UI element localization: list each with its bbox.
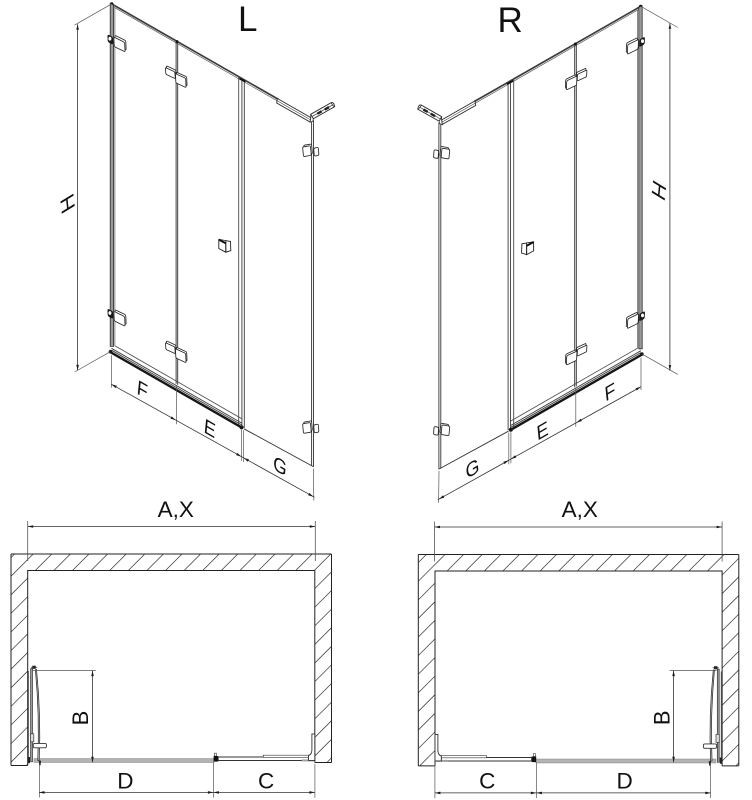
svg-text:A,X: A,X	[158, 497, 194, 522]
svg-text:C: C	[258, 769, 274, 794]
svg-text:D: D	[616, 769, 632, 794]
svg-text:A,X: A,X	[562, 497, 598, 522]
svg-text:R: R	[498, 1, 523, 40]
svg-text:B: B	[68, 711, 93, 726]
svg-text:D: D	[117, 769, 133, 794]
svg-text:C: C	[479, 769, 495, 794]
svg-text:L: L	[238, 0, 257, 39]
svg-text:B: B	[650, 710, 675, 725]
